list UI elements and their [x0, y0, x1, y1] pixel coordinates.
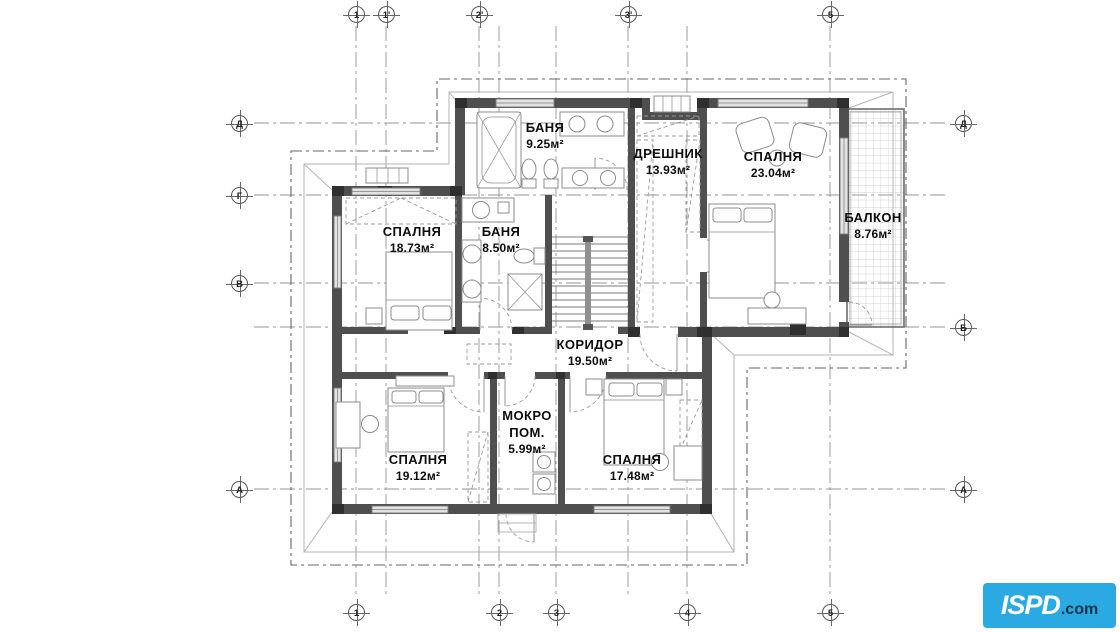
room-label-corridor: КОРИДОР 19.50м² [557, 337, 624, 369]
room-label-bedroom-1: СПАЛНЯ 23.04м² [744, 149, 803, 181]
axis-marker-left-g: Г [231, 187, 248, 204]
room-label-balcony: БАЛКОН 8.76м² [844, 210, 901, 242]
axis-marker-bottom-1: 1 [348, 604, 365, 621]
axis-marker-bottom-2: 2 [491, 604, 508, 621]
axis-marker-bottom-4: 4 [679, 604, 696, 621]
axis-marker-bottom-5: 5 [822, 604, 839, 621]
axis-marker-right-b: Б [955, 319, 972, 336]
axis-marker-top-3p: 3' [620, 6, 637, 23]
staircase [552, 236, 628, 330]
logo-suffix-text: .com [1061, 602, 1098, 618]
axis-marker-top-1: 1 [348, 6, 365, 23]
room-label-wet-room: МОКРО ПОМ. 5.99м² [491, 408, 563, 457]
floor-plan-page: БАНЯ 9.25м² ДРЕШНИК 13.93м² СПАЛНЯ 23.04… [0, 0, 1120, 632]
entry-steps [498, 514, 536, 532]
room-label-closet: ДРЕШНИК 13.93м² [633, 146, 702, 178]
axis-marker-top-1p: 1' [378, 6, 395, 23]
logo-brand-text: ISPD [1001, 592, 1060, 619]
room-label-bedroom-3: СПАЛНЯ 19.12м² [389, 452, 448, 484]
axis-marker-left-v: В [231, 275, 248, 292]
watermark-logo: ISPD .com [983, 583, 1116, 628]
axis-marker-left-d: Д [231, 115, 248, 132]
floor-plan-drawing [0, 0, 1120, 632]
axis-marker-left-a: А [231, 481, 248, 498]
axis-marker-top-5: 5 [822, 6, 839, 23]
axis-marker-bottom-3: 3 [548, 604, 565, 621]
room-label-bedroom-2: СПАЛНЯ 18.73м² [383, 224, 442, 256]
axis-marker-right-a: А [955, 481, 972, 498]
axis-marker-top-2p: 2' [471, 6, 488, 23]
room-label-bath-2: БАНЯ 8.50м² [482, 224, 521, 256]
room-label-bath-1: БАНЯ 9.25м² [526, 120, 565, 152]
axis-marker-right-d: Д [955, 115, 972, 132]
room-label-bedroom-4: СПАЛНЯ 17.48м² [603, 452, 662, 484]
